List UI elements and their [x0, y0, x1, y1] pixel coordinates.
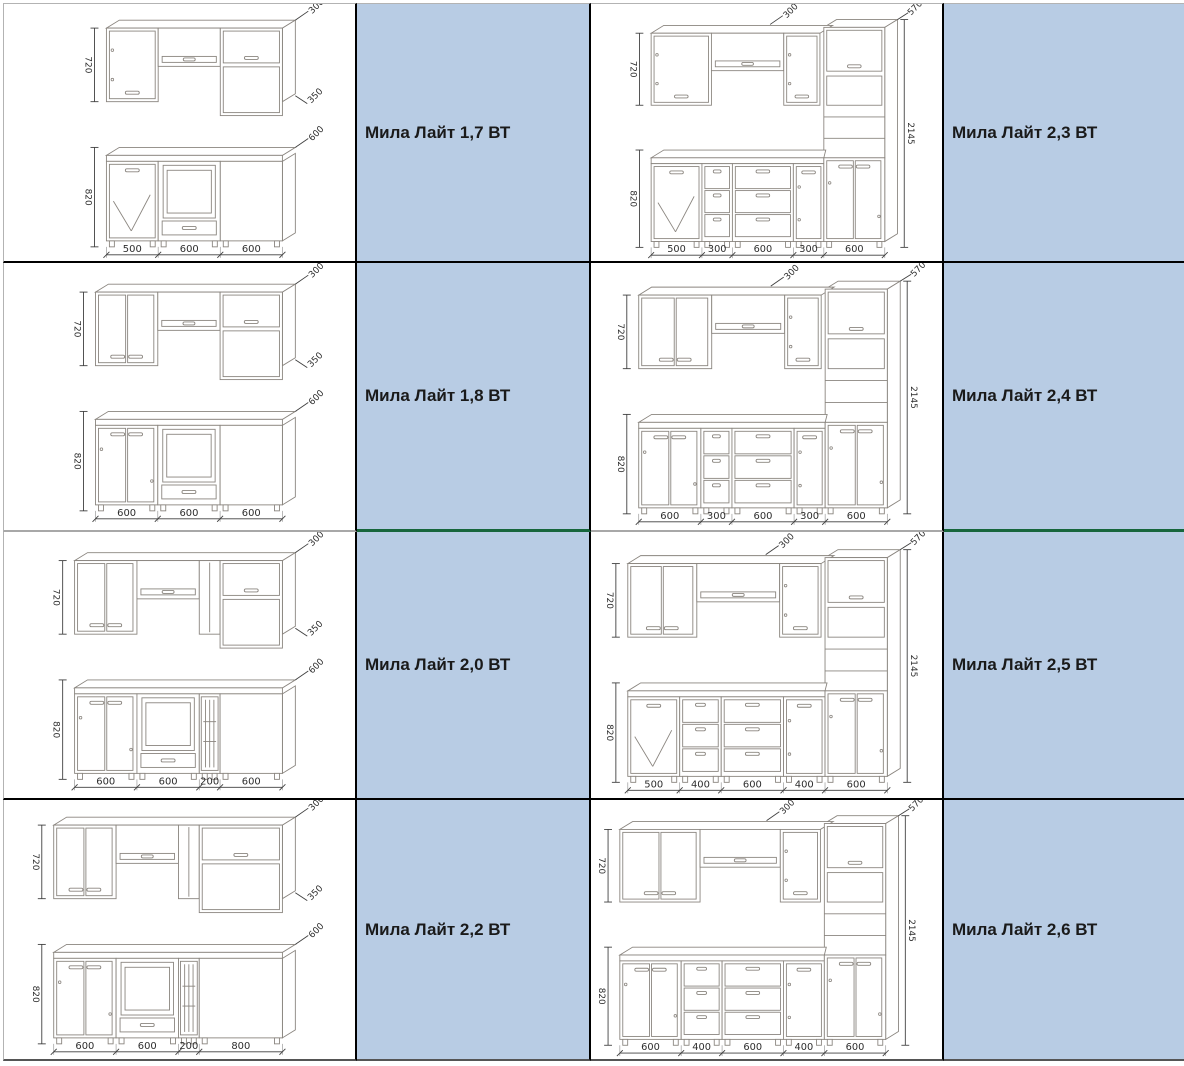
svg-text:2145: 2145 [908, 386, 918, 409]
drawing-cell: 7208202145300570500300600300600 [591, 3, 944, 263]
model-label-cell: Мила Лайт 2,6 ВТ [944, 800, 1184, 1061]
svg-text:2145: 2145 [908, 655, 918, 678]
svg-text:570: 570 [907, 800, 926, 814]
svg-text:350: 350 [306, 883, 325, 902]
svg-text:720: 720 [51, 589, 61, 606]
svg-text:2145: 2145 [906, 919, 916, 941]
svg-text:600: 600 [307, 921, 326, 940]
model-label-cell: Мила Лайт 1,8 ВТ [357, 263, 591, 532]
svg-text:600: 600 [847, 779, 866, 790]
svg-text:570: 570 [909, 263, 928, 279]
svg-text:400: 400 [692, 1042, 711, 1053]
svg-text:820: 820 [596, 988, 606, 1005]
svg-text:600: 600 [242, 776, 261, 787]
model-name: Мила Лайт 2,3 ВТ [952, 123, 1097, 143]
kitchen-drawing: 720300350820600600600200800 [4, 800, 355, 1059]
svg-text:350: 350 [306, 619, 325, 638]
svg-text:600: 600 [743, 1042, 762, 1053]
svg-text:600: 600 [138, 1041, 157, 1052]
svg-text:600: 600 [754, 511, 773, 522]
svg-text:300: 300 [799, 244, 818, 255]
model-label-cell: Мила Лайт 2,3 ВТ [944, 3, 1184, 263]
svg-text:500: 500 [667, 244, 686, 255]
svg-text:600: 600 [307, 657, 326, 676]
svg-text:820: 820 [51, 721, 61, 738]
svg-text:400: 400 [795, 1042, 814, 1053]
kitchen-drawing: 720300350820600600600600 [4, 263, 355, 530]
model-name: Мила Лайт 2,5 ВТ [952, 655, 1097, 675]
svg-text:300: 300 [307, 800, 326, 813]
svg-text:600: 600 [307, 388, 326, 407]
svg-text:600: 600 [179, 508, 198, 519]
svg-text:400: 400 [795, 779, 814, 790]
svg-text:720: 720 [30, 853, 40, 870]
drawing-cell: 720300350820600600600200800 [3, 800, 357, 1061]
svg-text:600: 600 [660, 511, 679, 522]
svg-text:400: 400 [691, 779, 710, 790]
svg-text:820: 820 [615, 456, 625, 473]
svg-text:720: 720 [72, 320, 82, 337]
svg-text:500: 500 [644, 779, 663, 790]
svg-text:600: 600 [641, 1042, 660, 1053]
svg-text:350: 350 [306, 86, 325, 105]
svg-text:600: 600 [754, 244, 773, 255]
model-name: Мила Лайт 1,7 ВТ [365, 123, 510, 143]
svg-text:600: 600 [75, 1041, 94, 1052]
svg-text:600: 600 [180, 244, 199, 255]
model-name: Мила Лайт 2,6 ВТ [952, 920, 1097, 940]
svg-text:600: 600 [847, 511, 866, 522]
drawing-cell: 7208202145300570600400600400600 [591, 800, 944, 1061]
svg-text:720: 720 [628, 61, 638, 78]
model-label-cell: Мила Лайт 1,7 ВТ [357, 3, 591, 263]
svg-text:200: 200 [179, 1041, 198, 1052]
svg-text:820: 820 [72, 453, 82, 470]
svg-text:350: 350 [306, 350, 325, 369]
svg-text:200: 200 [200, 776, 219, 787]
kitchen-drawing: 7208202145300570500400600400600 [591, 532, 942, 798]
svg-text:300: 300 [783, 263, 802, 282]
kitchen-drawing: 7208202145300570600400600400600 [591, 800, 942, 1059]
svg-text:600: 600 [307, 124, 326, 143]
svg-text:600: 600 [845, 244, 864, 255]
svg-text:800: 800 [231, 1041, 250, 1052]
drawing-cell: 720300350820600600600200600 [3, 532, 357, 800]
svg-text:570: 570 [909, 532, 928, 548]
svg-text:300: 300 [778, 532, 797, 551]
drawing-cell: 720300350820600500600600 [3, 3, 357, 263]
svg-text:300: 300 [778, 800, 797, 817]
drawing-cell: 7208202145300570600300600300600 [591, 263, 944, 532]
svg-text:820: 820 [30, 986, 40, 1003]
svg-text:600: 600 [96, 776, 115, 787]
model-name: Мила Лайт 1,8 ВТ [365, 386, 510, 406]
svg-text:600: 600 [743, 779, 762, 790]
svg-text:600: 600 [846, 1042, 865, 1053]
svg-text:600: 600 [117, 508, 136, 519]
model-label-cell: Мила Лайт 2,5 ВТ [944, 532, 1184, 800]
model-label-cell: Мила Лайт 2,0 ВТ [357, 532, 591, 800]
kitchen-drawing: 7208202145300570600300600300600 [591, 263, 942, 530]
kitchen-drawing: 7208202145300570500300600300600 [591, 4, 942, 261]
svg-text:300: 300 [307, 4, 326, 16]
svg-text:500: 500 [123, 244, 142, 255]
svg-text:820: 820 [604, 724, 614, 741]
svg-text:720: 720 [615, 323, 625, 340]
kitchen-drawing: 720300350820600500600600 [4, 4, 355, 261]
svg-text:720: 720 [604, 592, 614, 609]
svg-text:300: 300 [708, 244, 727, 255]
drawing-cell: 720300350820600600600600 [3, 263, 357, 532]
svg-text:300: 300 [800, 511, 819, 522]
drawing-cell: 7208202145300570500400600400600 [591, 532, 944, 800]
kitchen-drawing: 720300350820600600600200600 [4, 532, 355, 798]
model-label-cell: Мила Лайт 2,2 ВТ [357, 800, 591, 1061]
model-name: Мила Лайт 2,2 ВТ [365, 920, 510, 940]
svg-text:2145: 2145 [905, 122, 915, 144]
svg-text:600: 600 [242, 508, 261, 519]
model-name: Мила Лайт 2,0 ВТ [365, 655, 510, 675]
model-name: Мила Лайт 2,4 ВТ [952, 386, 1097, 406]
model-label-cell: Мила Лайт 2,4 ВТ [944, 263, 1184, 532]
svg-text:720: 720 [596, 857, 606, 874]
svg-text:600: 600 [242, 244, 261, 255]
svg-text:300: 300 [782, 4, 801, 21]
svg-text:820: 820 [83, 189, 93, 206]
svg-text:820: 820 [628, 190, 638, 207]
svg-text:600: 600 [159, 776, 178, 787]
svg-text:300: 300 [307, 263, 326, 280]
svg-text:570: 570 [906, 4, 925, 18]
svg-text:300: 300 [707, 511, 726, 522]
svg-text:300: 300 [307, 532, 326, 549]
svg-text:720: 720 [83, 56, 93, 73]
catalog-table: 720300350820600500600600 Мила Лайт 1,7 В… [3, 3, 1184, 1061]
